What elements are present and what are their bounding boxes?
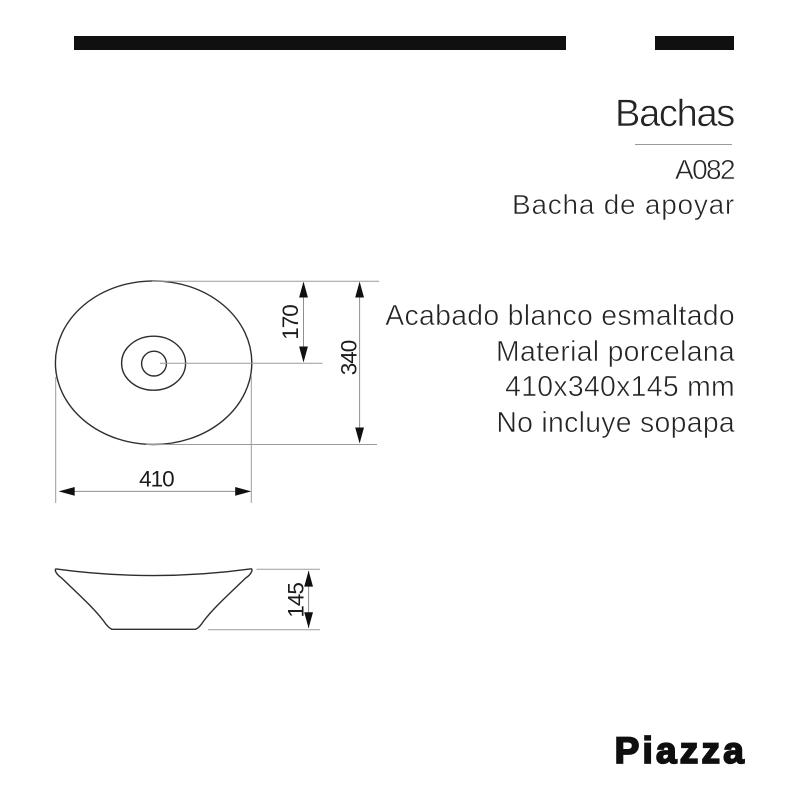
svg-text:145: 145 bbox=[283, 583, 308, 618]
svg-text:410: 410 bbox=[139, 466, 174, 491]
svg-text:340: 340 bbox=[337, 340, 362, 375]
svg-text:170: 170 bbox=[278, 305, 303, 340]
